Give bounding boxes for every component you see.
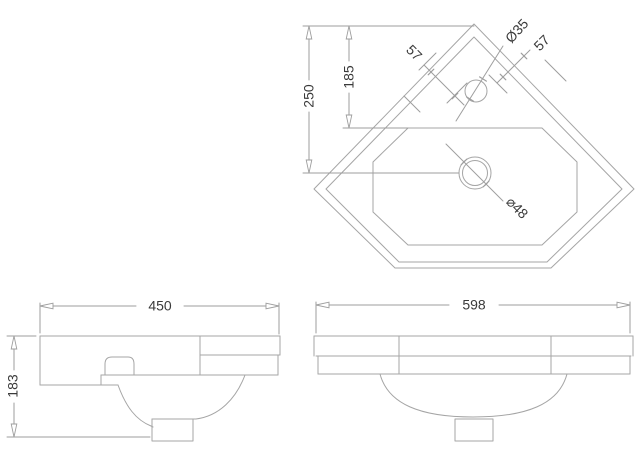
side-view: 450 183	[5, 298, 281, 442]
dim-57-right-label: 57	[530, 31, 552, 53]
front-drain-outlet	[455, 419, 493, 441]
plan-outer-rim	[314, 24, 634, 268]
side-bowl-front-wall	[118, 385, 153, 427]
side-bowl-outer	[152, 375, 245, 419]
drawing-canvas: 250 185 57 57 Ø35 ⌀48	[0, 0, 640, 454]
dim-598-arrow-left	[316, 302, 329, 308]
dim-57-left-extension-c	[404, 96, 420, 112]
dim-57-left-extension-b	[447, 83, 467, 103]
dim-57-left-line	[424, 65, 464, 105]
technical-drawing-corner-basin: 250 185 57 57 Ø35 ⌀48	[0, 0, 640, 454]
front-view: 598	[314, 297, 633, 442]
dim-d35-label: Ø35	[502, 15, 532, 46]
dim-250-label: 250	[301, 84, 317, 108]
front-bowl-outline	[380, 374, 567, 417]
tap-hole	[465, 80, 487, 102]
dim-450-label: 450	[148, 298, 172, 314]
dim-598-label: 598	[462, 297, 486, 313]
dim-185-label: 185	[341, 65, 357, 89]
dim-d48-label: ⌀48	[503, 193, 531, 221]
dim-183-arrow-bottom	[11, 424, 17, 437]
dim-d35-leader	[456, 46, 503, 121]
plan-bowl-outline	[373, 128, 577, 245]
dim-450-arrow-left	[40, 303, 53, 309]
dim-185-arrow-bottom	[346, 115, 352, 128]
plan-inner-rim	[326, 37, 622, 262]
dim-183-label: 183	[5, 374, 21, 398]
dim-57-right-extension-b	[545, 60, 566, 81]
dim-450-arrow-right	[266, 303, 279, 309]
dim-250-arrow-bottom	[306, 160, 312, 173]
dim-57-left-label: 57	[403, 41, 425, 63]
dim-183-arrow-top	[11, 336, 17, 349]
dim-250-arrow-top	[306, 26, 312, 39]
plan-view: 250 185 57 57 Ø35 ⌀48	[301, 15, 635, 268]
dim-185-arrow-top	[346, 26, 352, 39]
side-drain-outlet	[152, 419, 193, 441]
dim-598-arrow-right	[617, 302, 630, 308]
overflow-bump	[105, 357, 134, 375]
